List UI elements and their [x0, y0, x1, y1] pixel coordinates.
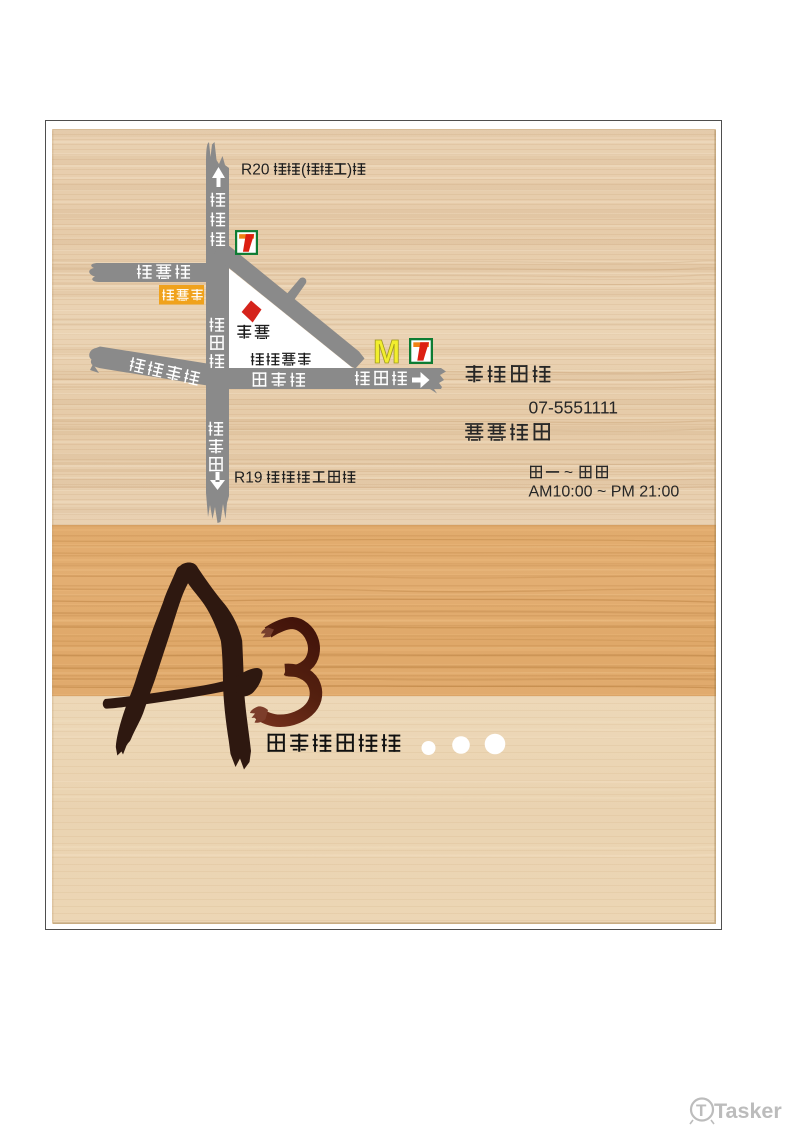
- svg-text:~: ~: [564, 465, 573, 482]
- svg-text:T: T: [696, 1101, 707, 1120]
- svg-text:R19: R19: [234, 470, 262, 487]
- svg-text:AM10:00 ~ PM 21:00: AM10:00 ~ PM 21:00: [529, 484, 680, 501]
- svg-text:R20: R20: [241, 162, 270, 179]
- svg-text:Tasker: Tasker: [714, 1099, 782, 1123]
- svg-text:07-5551111: 07-5551111: [529, 398, 619, 418]
- svg-text:(: (: [301, 162, 307, 179]
- svg-text:M: M: [373, 333, 401, 370]
- svg-text:): ): [347, 162, 352, 179]
